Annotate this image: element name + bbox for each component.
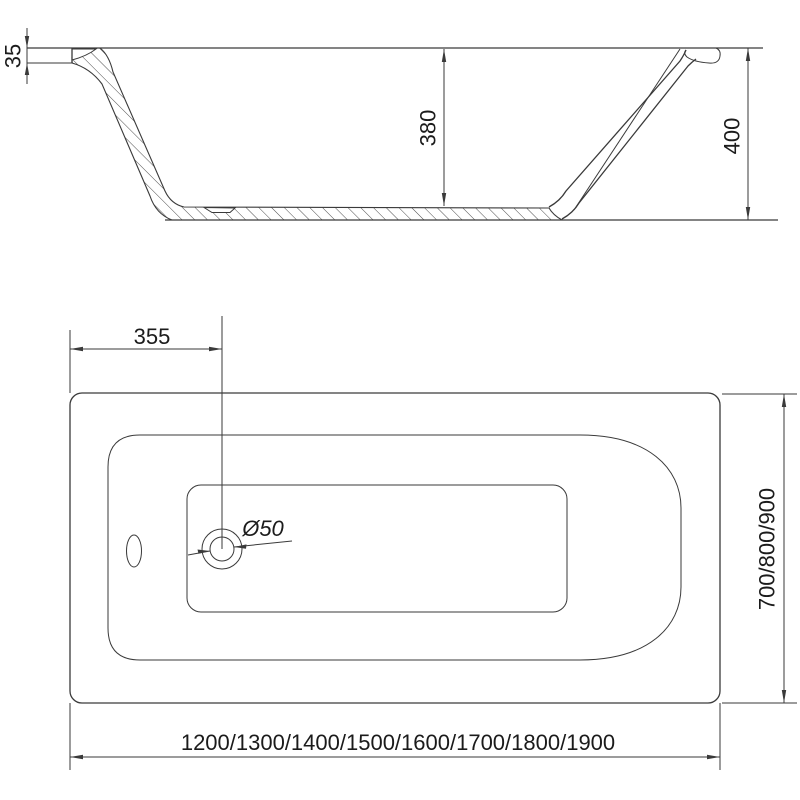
technical-drawing-canvas: 35 380 400 [0, 0, 800, 800]
dim-355-arrow-left [70, 347, 83, 351]
dim-widths: 700/800/900 [722, 394, 797, 703]
right-wall-silhouette [574, 49, 680, 210]
dim-width-arrow-bottom [782, 690, 786, 703]
dim-length-arrow-left [70, 755, 83, 759]
right-wall-outer [562, 59, 696, 219]
dim-lengths: 1200/1300/1400/1500/1600/1700/1800/1900 [70, 703, 720, 770]
dim-35: 35 [1, 28, 30, 84]
dim-400-label: 400 [720, 118, 745, 155]
dim-400: 400 [720, 48, 751, 220]
dim-355-label: 355 [134, 324, 171, 349]
dim-lengths-label: 1200/1300/1400/1500/1600/1700/1800/1900 [181, 730, 615, 755]
side-view: 35 380 400 [1, 28, 779, 220]
section-hatch-band [72, 48, 562, 220]
dim-400-arrow-top [746, 48, 750, 61]
dim-380: 380 [416, 49, 447, 206]
dim-380-arrow-top [442, 49, 446, 62]
tub-rim-inner-contour [108, 435, 681, 660]
tub-floor-rect [187, 485, 567, 612]
dim-380-label: 380 [416, 110, 441, 147]
right-wall-inner [549, 50, 686, 207]
dim-355-arrow-right [209, 347, 222, 351]
tub-outer-rect [70, 393, 720, 703]
overflow-hole [127, 535, 142, 567]
dim-length-arrow-right [707, 755, 720, 759]
dim-width-arrow-top [782, 394, 786, 407]
dim-widths-label: 700/800/900 [755, 488, 780, 610]
dim-400-arrow-bottom [746, 207, 750, 220]
dim-d50-label: Ø50 [241, 516, 284, 541]
right-rim-curl [685, 48, 720, 63]
plan-view: 355 Ø50 700/800/900 1200/1300/1400/1 [70, 316, 797, 770]
bathtub-drawing-svg: 35 380 400 [0, 0, 800, 800]
dim-380-arrow-bottom [442, 193, 446, 206]
dim-355: 355 [70, 316, 222, 549]
dim-35-label: 35 [1, 44, 26, 68]
dim-drain-diameter: Ø50 [188, 516, 292, 555]
